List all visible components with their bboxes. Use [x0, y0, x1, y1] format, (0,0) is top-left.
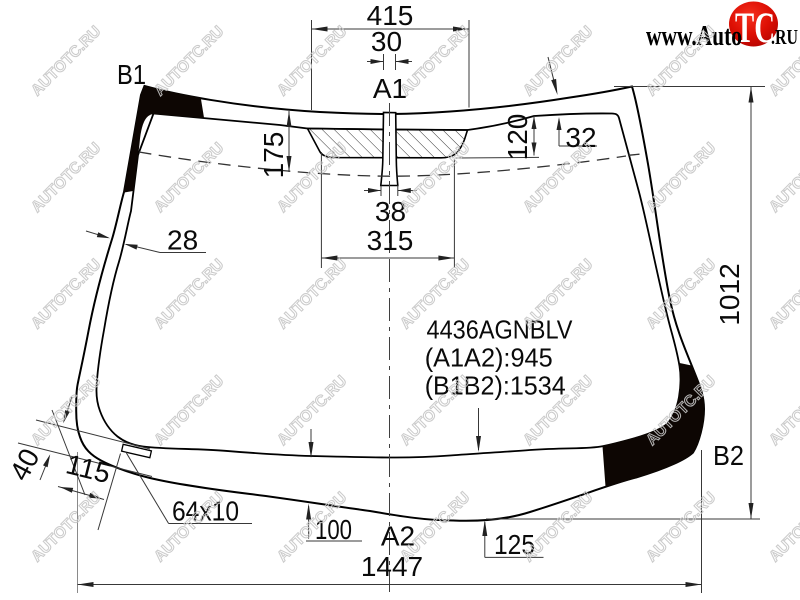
svg-text:175: 175 [258, 132, 289, 179]
svg-text:28: 28 [167, 225, 198, 256]
svg-text:120: 120 [502, 114, 533, 161]
svg-text:.RU: .RU [771, 25, 798, 49]
svg-text:315: 315 [367, 225, 414, 256]
svg-text:B2: B2 [713, 440, 744, 471]
svg-text:1012: 1012 [714, 263, 745, 325]
svg-text:B1: B1 [117, 59, 146, 90]
svg-text:30: 30 [371, 26, 402, 57]
svg-text:(A1A2):945: (A1A2):945 [425, 343, 553, 373]
svg-text:4436AGNBLV: 4436AGNBLV [427, 315, 574, 345]
